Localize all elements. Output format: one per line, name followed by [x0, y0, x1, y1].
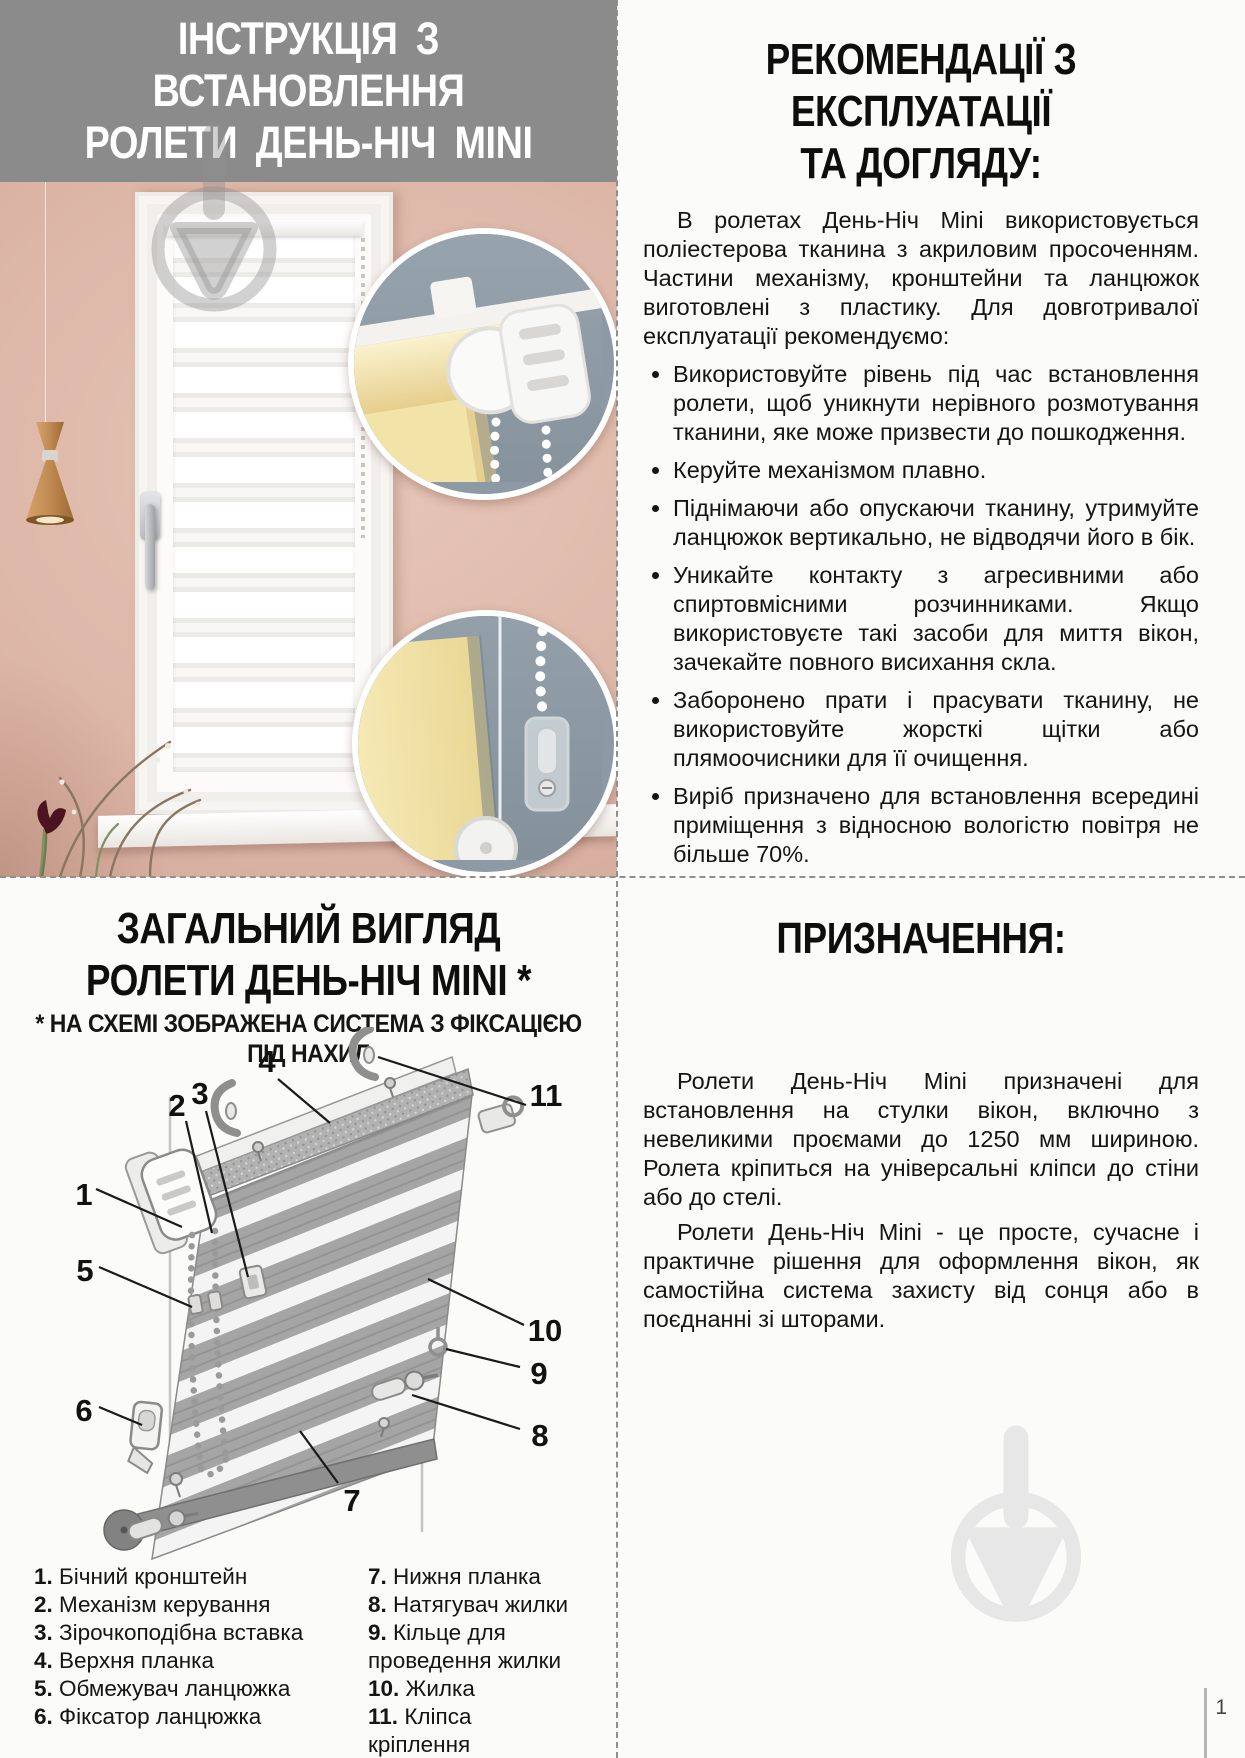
legend-item: 5. Обмежувач ланцюжка [34, 1675, 334, 1703]
diagram-callout-number: 3 [191, 1076, 208, 1111]
legend-item: 1. Бічний кронштейн [34, 1563, 334, 1591]
diagram-callout-number: 7 [343, 1483, 360, 1518]
legend-item: 8. Натягувач жилки [368, 1591, 578, 1619]
purpose-section: ПРИЗНАЧЕННЯ: Ролети День-Ніч Mini призна… [617, 877, 1245, 1758]
diagram-callout-number: 5 [76, 1253, 93, 1288]
blind-diagram: 1 2 3 4 5 6 7 8 9 10 11 [0, 1027, 617, 1565]
diagram-callout-number: 2 [168, 1088, 185, 1123]
pendant-lamp [12, 420, 92, 530]
purpose-paragraph-2: Ролети День-Ніч Mini - це просте, сучасн… [643, 1218, 1199, 1334]
legend-item: 3. Зірочкоподібна вставка [34, 1619, 334, 1647]
page-number: 1 [1215, 1696, 1227, 1720]
divider-horizontal [0, 876, 1245, 878]
legend-item: 4. Верхня планка [34, 1647, 334, 1675]
legend-item: 11. Кліпса кріплення [368, 1703, 578, 1758]
diagram-callout-number: 8 [531, 1418, 548, 1453]
purpose-paragraph-1: Ролети День-Ніч Mini призначені для вста… [643, 1067, 1199, 1212]
lamp-wire [45, 182, 46, 424]
instruction-sheet-page: ІНСТРУКЦІЯ З ВСТАНОВЛЕННЯ РОЛЕТИ ДЕНЬ-НІ… [0, 0, 1245, 1758]
day-night-blind [173, 232, 355, 772]
overview-section: ЗАГАЛЬНИЙ ВИГЛЯД РОЛЕТИ ДЕНЬ-НІЧ MINI * … [0, 877, 617, 1758]
recommendations-intro: В ролетах День-Ніч Mini використовується… [643, 206, 1199, 351]
brand-watermark-icon [923, 1417, 1109, 1645]
list-item: Піднімаючи або опускаючи тканину, утриму… [673, 494, 1199, 552]
diagram-callout-number: 11 [530, 1078, 563, 1113]
diagram-callout-number: 9 [530, 1356, 547, 1391]
overview-title: ЗАГАЛЬНИЙ ВИГЛЯД РОЛЕТИ ДЕНЬ-НІЧ MINI * [10, 903, 607, 1007]
install-section: ІНСТРУКЦІЯ З ВСТАНОВЛЕННЯ РОЛЕТИ ДЕНЬ-НІ… [0, 0, 617, 877]
inset-fixator-photo [352, 610, 617, 877]
legend-item: 2. Механізм керування [34, 1591, 334, 1619]
recommendations-list: Використовуйте рівень під час встановлен… [643, 360, 1199, 877]
legend-item: 10. Жилка [368, 1675, 578, 1703]
divider-vertical [616, 0, 618, 1758]
legend-column-right: 7. Нижня планка 8. Натягувач жилки 9. Кі… [368, 1563, 578, 1758]
list-item: Використовуйте рівень під час встановлен… [673, 360, 1199, 447]
page-number-bar [1204, 1688, 1207, 1758]
diagram-callout-number: 10 [528, 1313, 562, 1348]
window-sash [147, 204, 381, 802]
recommendations-section: РЕКОМЕНДАЦІЇ З ЕКСПЛУАТАЦІЇ ТА ДОГЛЯДУ: … [617, 0, 1245, 877]
window-handle [145, 504, 155, 590]
list-item: Заборонено прати і прасувати тканину, не… [673, 686, 1199, 773]
inset-mechanism-photo [348, 228, 617, 500]
diagram-callout-number: 4 [258, 1044, 276, 1079]
legend-item: 7. Нижня планка [368, 1563, 578, 1591]
diagram-callout-number: 6 [75, 1393, 92, 1428]
list-item: Виріб призначено для встановлення всеред… [673, 782, 1199, 869]
recommendations-title: РЕКОМЕНДАЦІЇ З ЕКСПЛУАТАЦІЇ ТА ДОГЛЯДУ: [643, 34, 1199, 190]
legend-column-left: 1. Бічний кронштейн 2. Механізм керуванн… [34, 1563, 334, 1731]
install-header-band: ІНСТРУКЦІЯ З ВСТАНОВЛЕННЯ РОЛЕТИ ДЕНЬ-НІ… [0, 0, 617, 182]
blind-cassette [165, 220, 363, 236]
purpose-title: ПРИЗНАЧЕННЯ: [643, 913, 1199, 965]
list-item: Уникайте контакту з агресивними або спир… [673, 561, 1199, 677]
room-photo [0, 182, 617, 877]
install-header-line2: РОЛЕТИ ДЕНЬ-НІЧ MINI [85, 117, 533, 169]
legend-item: 6. Фіксатор ланцюжка [34, 1703, 334, 1731]
legend-item: 9. Кільце для проведення жилки [368, 1619, 578, 1675]
diagram-callout-number: 1 [75, 1177, 92, 1212]
list-item: Керуйте механізмом плавно. [673, 456, 1199, 485]
plant [0, 720, 280, 877]
install-header-line1: ІНСТРУКЦІЯ З ВСТАНОВЛЕННЯ [49, 13, 567, 117]
